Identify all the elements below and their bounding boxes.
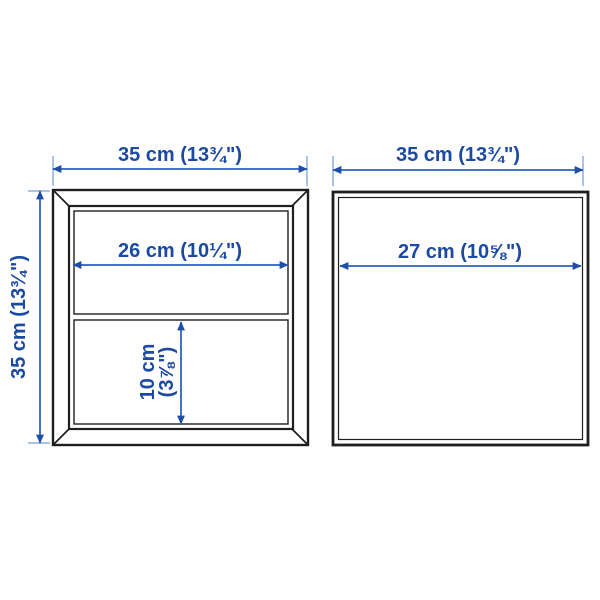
left-inner-height-dimension-label-line2: (3⅞") [156, 347, 178, 398]
dimension-diagram-canvas: 35 cm (13¾") 35 cm (13¾") 26 cm (10¼") 1… [0, 0, 600, 600]
right-cabinet-figure [333, 192, 588, 445]
right-inner-width-dimension: 27 cm (10⅝") [340, 241, 581, 266]
left-inner-width-dimension: 26 cm (10¼") [73, 240, 288, 265]
right-inner-width-dimension-label: 27 cm (10⅝") [398, 241, 522, 263]
left-cabinet-upper-compartment [74, 211, 288, 314]
left-height-dimension-label: 35 cm (13¾") [8, 255, 30, 379]
right-width-dimension-label: 35 cm (13¾") [396, 144, 520, 166]
left-inner-height-dimension: 10 cm (3⅞") [137, 322, 181, 424]
left-width-dimension: 35 cm (13¾") [53, 144, 307, 186]
right-cabinet-outer-frame [333, 192, 588, 445]
right-cabinet-inner-edge [339, 198, 583, 440]
left-inner-width-dimension-label: 26 cm (10¼") [118, 240, 242, 262]
left-width-dimension-label: 35 cm (13¾") [118, 144, 242, 166]
left-height-dimension: 35 cm (13¾") [8, 191, 50, 443]
left-cabinet-miter-bottom-left [53, 429, 69, 445]
left-cabinet-miter-bottom-right [292, 429, 308, 445]
left-cabinet-miter-top-right [292, 190, 308, 206]
product-dimension-diagram: 35 cm (13¾") 35 cm (13¾") 26 cm (10¼") 1… [0, 0, 600, 600]
right-width-dimension: 35 cm (13¾") [333, 144, 583, 186]
left-cabinet-miter-top-left [53, 190, 69, 206]
